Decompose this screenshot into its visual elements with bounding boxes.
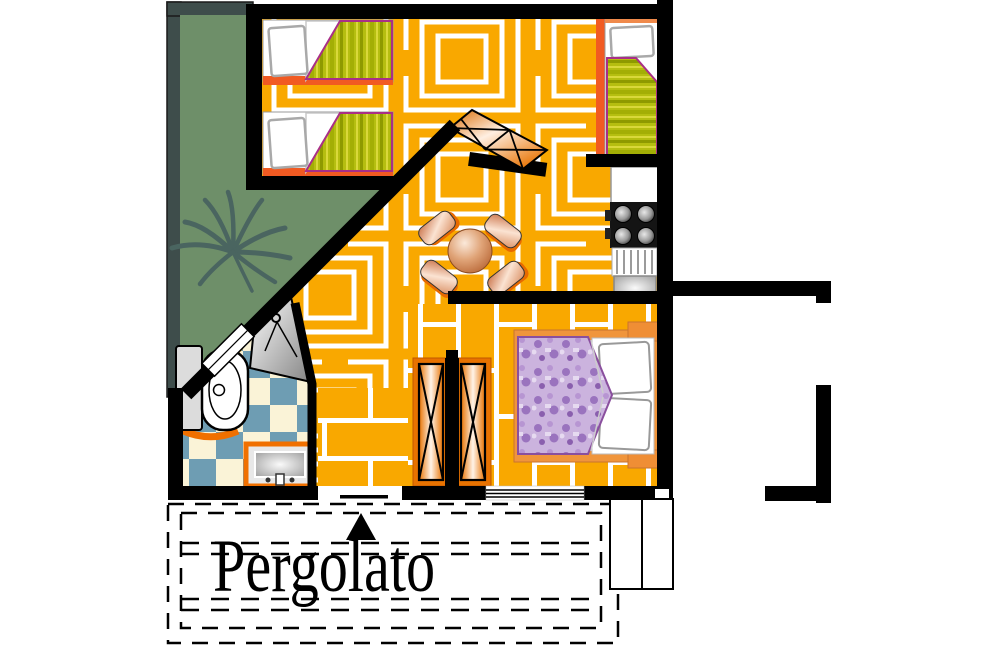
wall-bedroom-bottom [246, 176, 398, 190]
kitchen-counter [611, 167, 658, 203]
neighbour-wall-bottom [765, 486, 831, 501]
bottom-window [486, 486, 584, 500]
entrance-steps [610, 499, 673, 589]
blanket [607, 58, 657, 156]
floor-plan-page: Pergolato [0, 0, 1000, 650]
pillow [610, 26, 654, 58]
neighbour-wall-top [672, 281, 831, 296]
neighbour-wall-tab [816, 281, 831, 303]
wardrobe-door [419, 364, 443, 480]
neighbour-wall-vertical [816, 385, 831, 503]
door-threshold [340, 495, 388, 499]
double-bed [514, 322, 658, 468]
pergola-area: Pergolato [168, 499, 673, 643]
floor-plan-drawing: Pergolato [0, 0, 1000, 650]
floor-hall-planks [318, 388, 412, 490]
drainboard [612, 248, 657, 276]
wall-top [246, 4, 673, 19]
wardrobe [413, 350, 491, 486]
single-bed [596, 17, 658, 158]
wall-stub [446, 350, 458, 360]
bathroom-sink [246, 444, 313, 486]
wall-right [657, 0, 673, 501]
neighbour-walls [672, 281, 831, 503]
pergola-label: Pergolato [213, 524, 435, 608]
wall-living-bedroom [448, 291, 658, 304]
wall-bedroom-left [246, 4, 262, 190]
twin-bed [263, 20, 393, 85]
round-table [448, 229, 492, 273]
garden-border-top [167, 2, 253, 16]
wall-bath-left [168, 388, 183, 498]
twin-bed-2 [263, 112, 393, 177]
wall-bottom [168, 486, 672, 500]
wall-kitchen-stub [586, 154, 658, 167]
garden-border-left [167, 2, 181, 397]
wardrobe-door [461, 364, 485, 480]
pillow [268, 26, 307, 76]
stove-icon [605, 202, 658, 248]
